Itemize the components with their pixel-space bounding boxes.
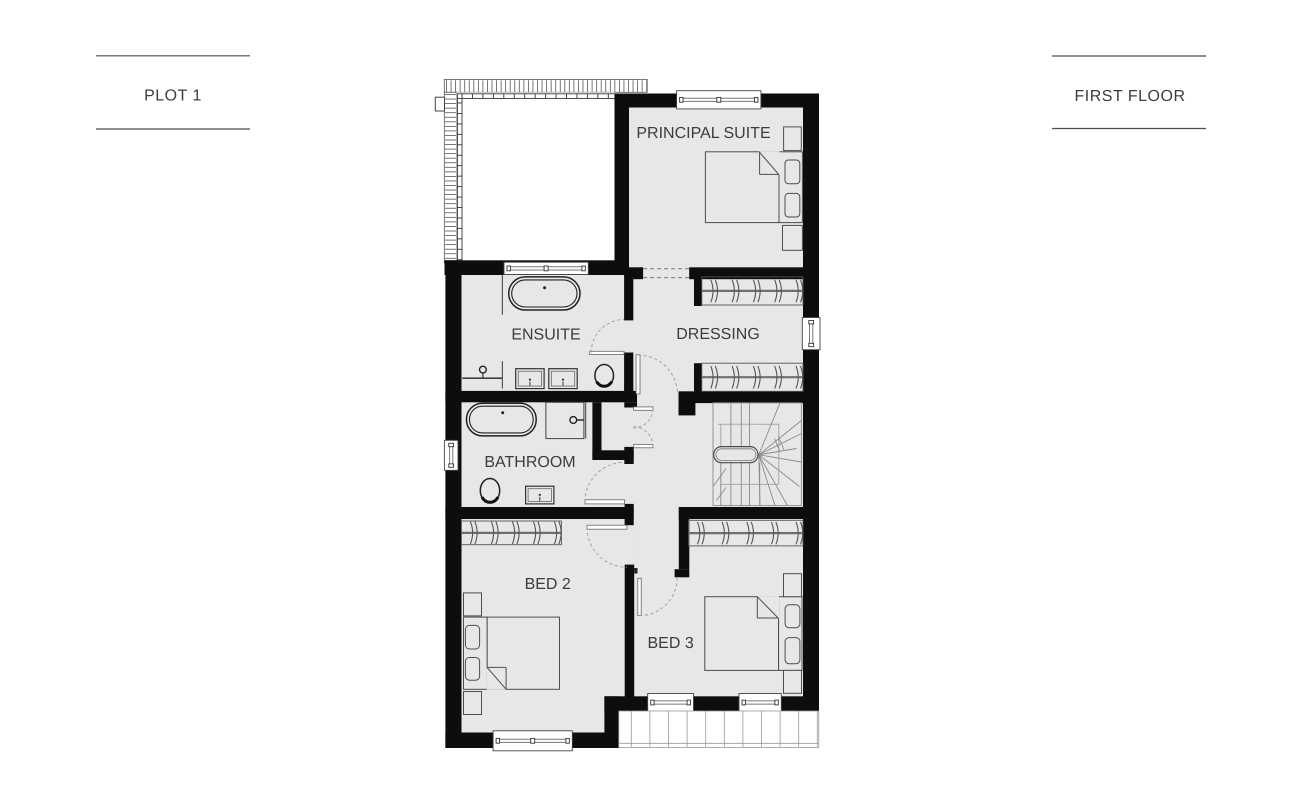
svg-text:DRESSING: DRESSING (676, 326, 760, 343)
svg-text:PRINCIPAL SUITE: PRINCIPAL SUITE (636, 125, 770, 142)
svg-text:BED 2: BED 2 (525, 576, 571, 593)
svg-text:BED 3: BED 3 (647, 635, 693, 652)
svg-text:PLOT 1: PLOT 1 (144, 88, 202, 105)
svg-text:ENSUITE: ENSUITE (511, 327, 580, 344)
svg-text:FIRST FLOOR: FIRST FLOOR (1075, 88, 1186, 105)
svg-text:BATHROOM: BATHROOM (484, 454, 575, 471)
